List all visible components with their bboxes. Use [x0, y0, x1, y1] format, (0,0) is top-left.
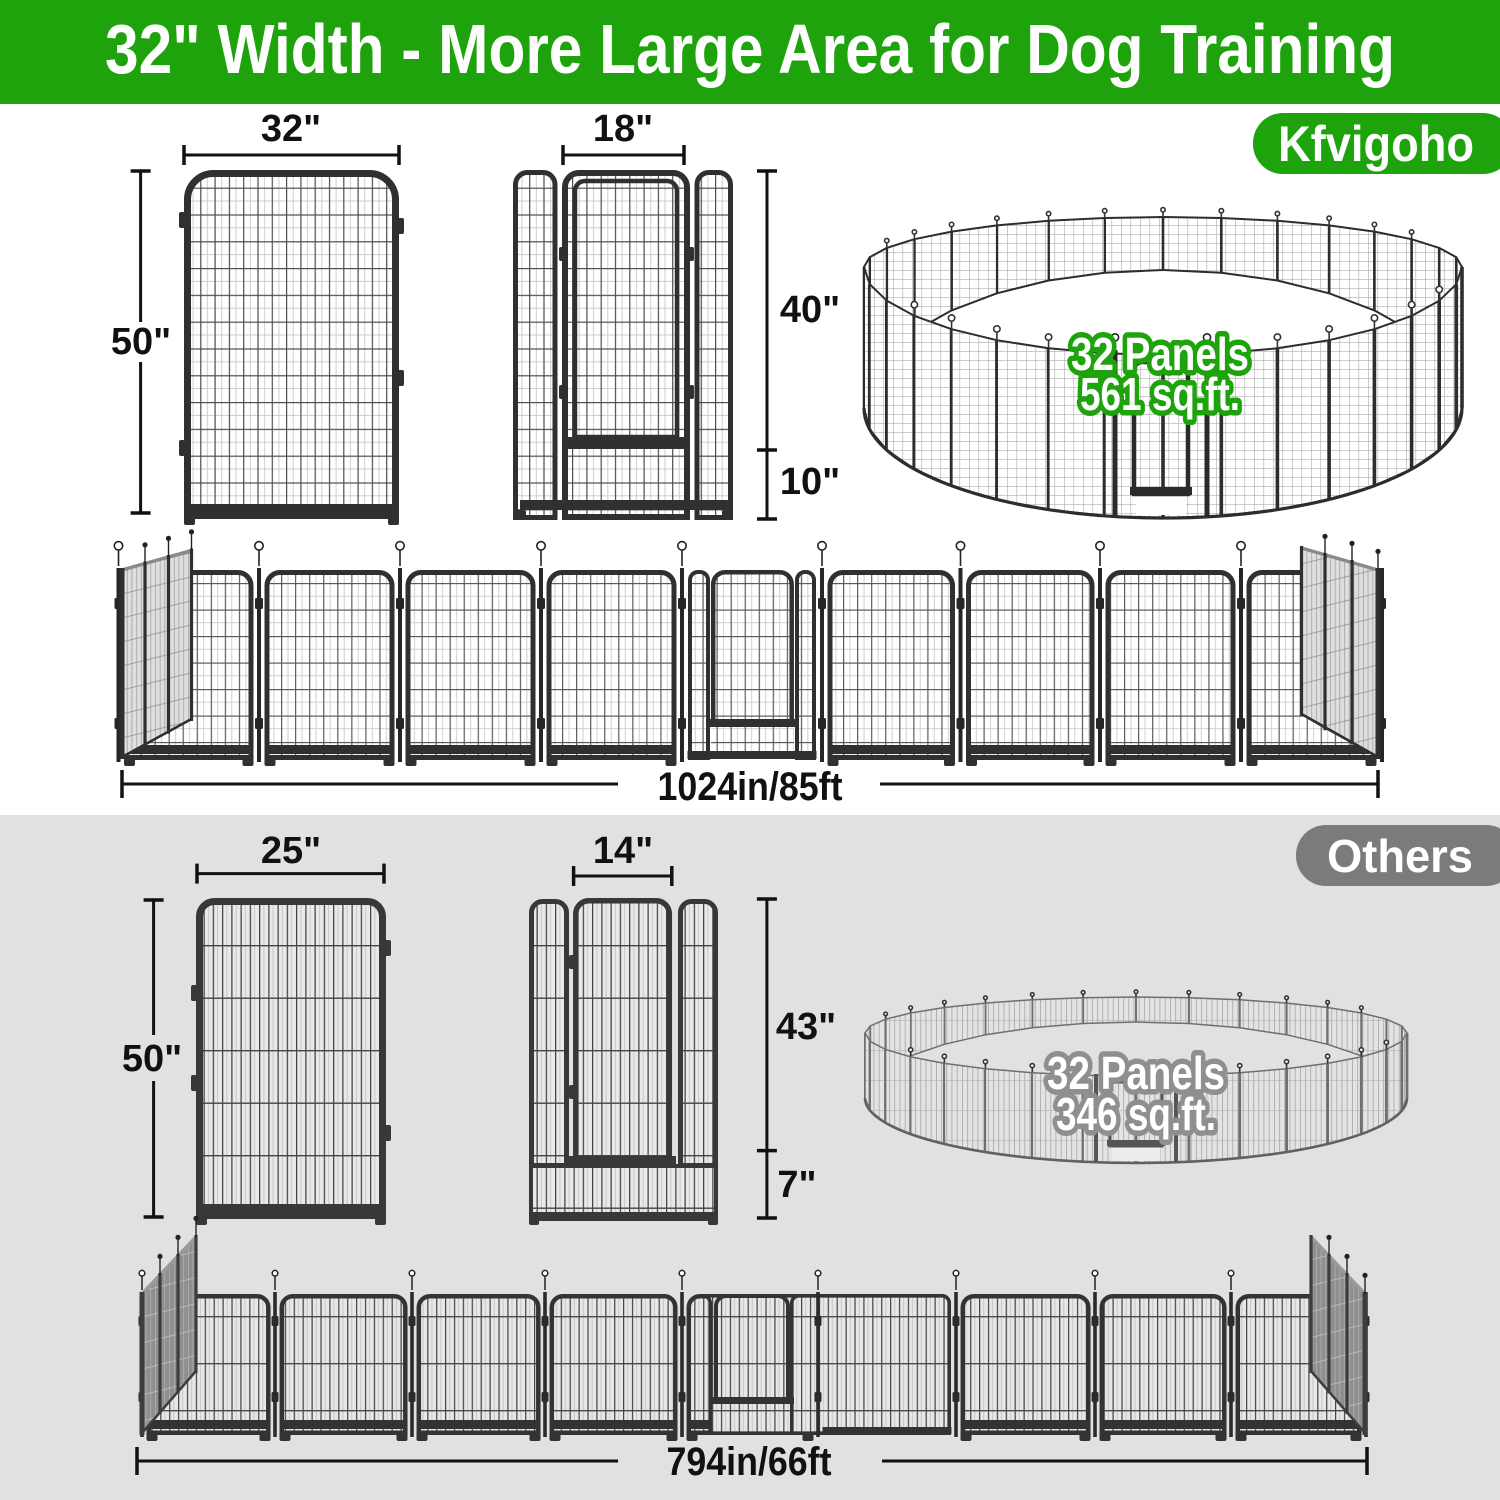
svg-text:7": 7"	[777, 1164, 816, 1206]
svg-text:561 sq.ft.: 561 sq.ft.	[1080, 368, 1240, 420]
svg-text:18": 18"	[593, 108, 653, 150]
svg-text:346 sq.ft.: 346 sq.ft.	[1056, 1088, 1216, 1140]
svg-text:10": 10"	[780, 461, 840, 503]
svg-text:Others: Others	[1327, 830, 1473, 882]
svg-text:40": 40"	[780, 289, 840, 331]
svg-text:25": 25"	[261, 830, 321, 872]
svg-text:50": 50"	[111, 321, 171, 363]
svg-text:1024in/85ft: 1024in/85ft	[658, 765, 843, 809]
svg-text:Kfvigoho: Kfvigoho	[1278, 116, 1474, 172]
svg-text:50": 50"	[122, 1038, 182, 1080]
svg-text:32": 32"	[261, 108, 321, 150]
svg-text:43": 43"	[776, 1006, 836, 1048]
svg-text:14": 14"	[593, 830, 653, 872]
svg-text:794in/66ft: 794in/66ft	[667, 1440, 832, 1484]
svg-text:32" Width - More Large Area fo: 32" Width - More Large Area for Dog Trai…	[105, 10, 1395, 88]
